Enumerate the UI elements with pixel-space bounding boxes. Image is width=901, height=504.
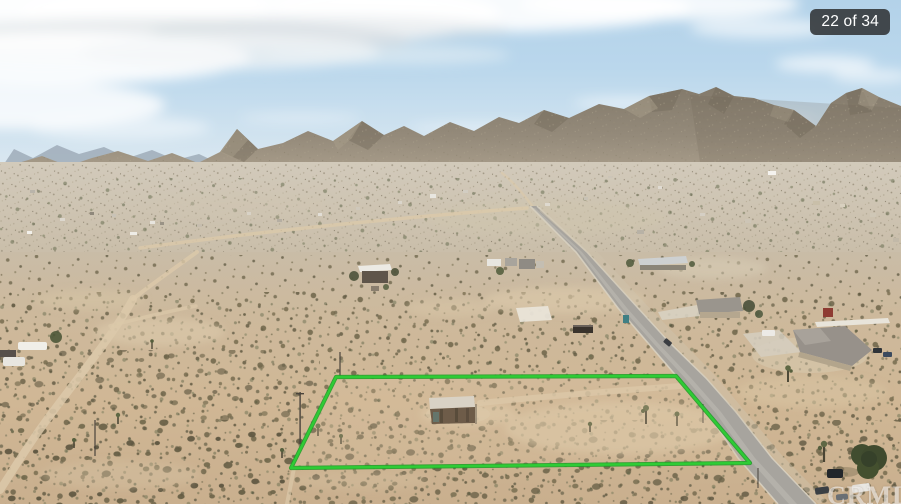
valley-floor [0, 162, 901, 262]
listing-photo[interactable]: CRMLS 22 of 34 [0, 0, 901, 504]
photo-counter-badge: 22 of 34 [810, 9, 890, 35]
photo-viewer: CRMLS 22 of 34 [0, 0, 901, 504]
property-boundary [291, 376, 750, 468]
mls-watermark: CRMLS [827, 481, 901, 504]
aerial-scene [0, 0, 901, 504]
concrete-pad [516, 306, 552, 322]
